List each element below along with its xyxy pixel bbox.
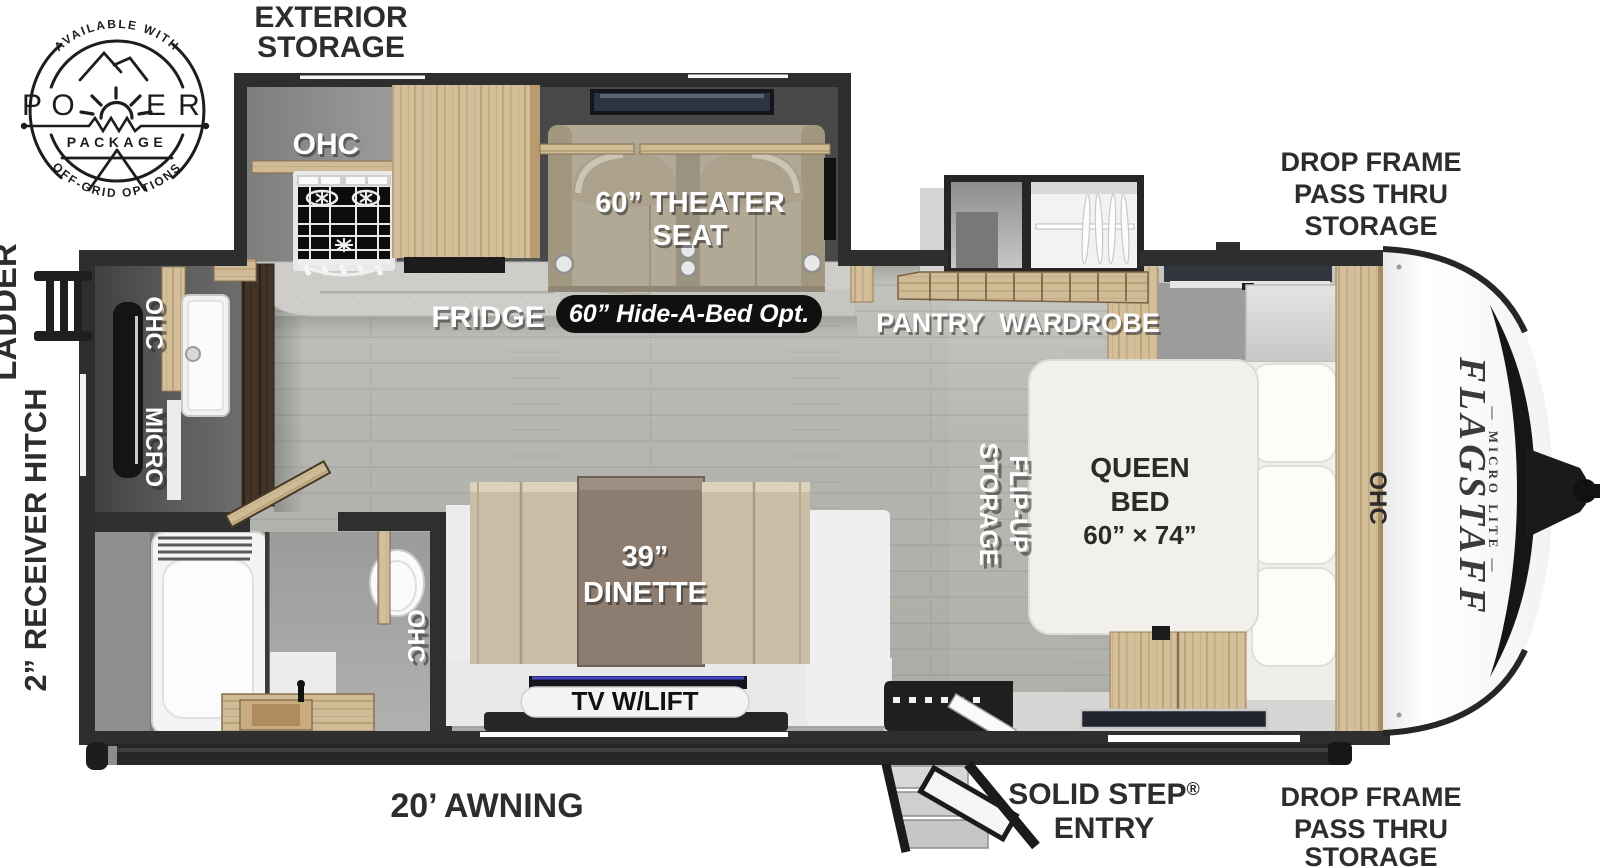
svg-text:ENTRY: ENTRY [1054, 812, 1155, 845]
svg-text:TV W/LIFT: TV W/LIFT [571, 686, 698, 716]
svg-text:FRIDGE: FRIDGE [431, 301, 544, 334]
svg-text:OHC: OHC [293, 128, 360, 161]
svg-text:FLIP-UP: FLIP-UP [1004, 455, 1032, 552]
svg-text:BED: BED [1110, 486, 1169, 517]
svg-text:DINETTE: DINETTE [583, 577, 707, 609]
svg-text:DROP FRAME: DROP FRAME [1280, 782, 1461, 812]
svg-text:20’ AWNING: 20’ AWNING [390, 787, 583, 825]
svg-text:PASS THRU: PASS THRU [1294, 179, 1448, 209]
svg-text:2” RECEIVER HITCH: 2” RECEIVER HITCH [18, 388, 53, 691]
svg-text:SOLID STEP®: SOLID STEP® [1008, 778, 1200, 811]
svg-text:60” THEATER: 60” THEATER [595, 187, 785, 219]
svg-text:OHC: OHC [140, 296, 167, 349]
svg-text:OHC: OHC [402, 609, 429, 662]
svg-text:MICRO: MICRO [140, 407, 167, 487]
svg-text:LADDER: LADDER [0, 243, 23, 381]
svg-text:60” Hide-A-Bed Opt.: 60” Hide-A-Bed Opt. [569, 300, 809, 328]
svg-text:R: R [178, 89, 200, 122]
svg-text:PACKAGE: PACKAGE [67, 134, 167, 150]
svg-text:— MICRO LITE —: — MICRO LITE — [1486, 405, 1501, 575]
svg-text:SEAT: SEAT [652, 220, 727, 252]
svg-text:PANTRY WARDROBE: PANTRY WARDROBE [876, 308, 1160, 338]
svg-text:EXTERIOR: EXTERIOR [254, 1, 408, 34]
svg-text:STORAGE: STORAGE [257, 31, 405, 64]
svg-text:OHC: OHC [1364, 471, 1391, 524]
svg-text:P: P [22, 89, 42, 122]
svg-text:STORAGE: STORAGE [1304, 842, 1437, 868]
svg-text:DROP FRAME: DROP FRAME [1280, 147, 1461, 177]
svg-text:O: O [51, 89, 74, 122]
svg-text:E: E [146, 89, 166, 122]
svg-text:60” × 74”: 60” × 74” [1083, 520, 1196, 550]
svg-text:STORAGE: STORAGE [974, 442, 1002, 565]
svg-text:QUEEN: QUEEN [1090, 452, 1190, 483]
svg-text:39”: 39” [622, 541, 669, 573]
svg-text:PASS THRU: PASS THRU [1294, 814, 1448, 844]
svg-text:STORAGE: STORAGE [1304, 211, 1437, 241]
